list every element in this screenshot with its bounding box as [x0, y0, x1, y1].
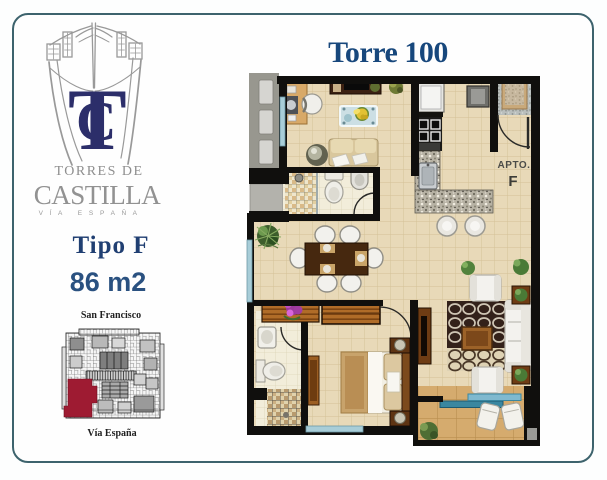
- svg-text:APTO.: APTO.: [498, 160, 531, 171]
- svg-text:F: F: [508, 173, 517, 190]
- svg-text:T: T: [68, 72, 127, 167]
